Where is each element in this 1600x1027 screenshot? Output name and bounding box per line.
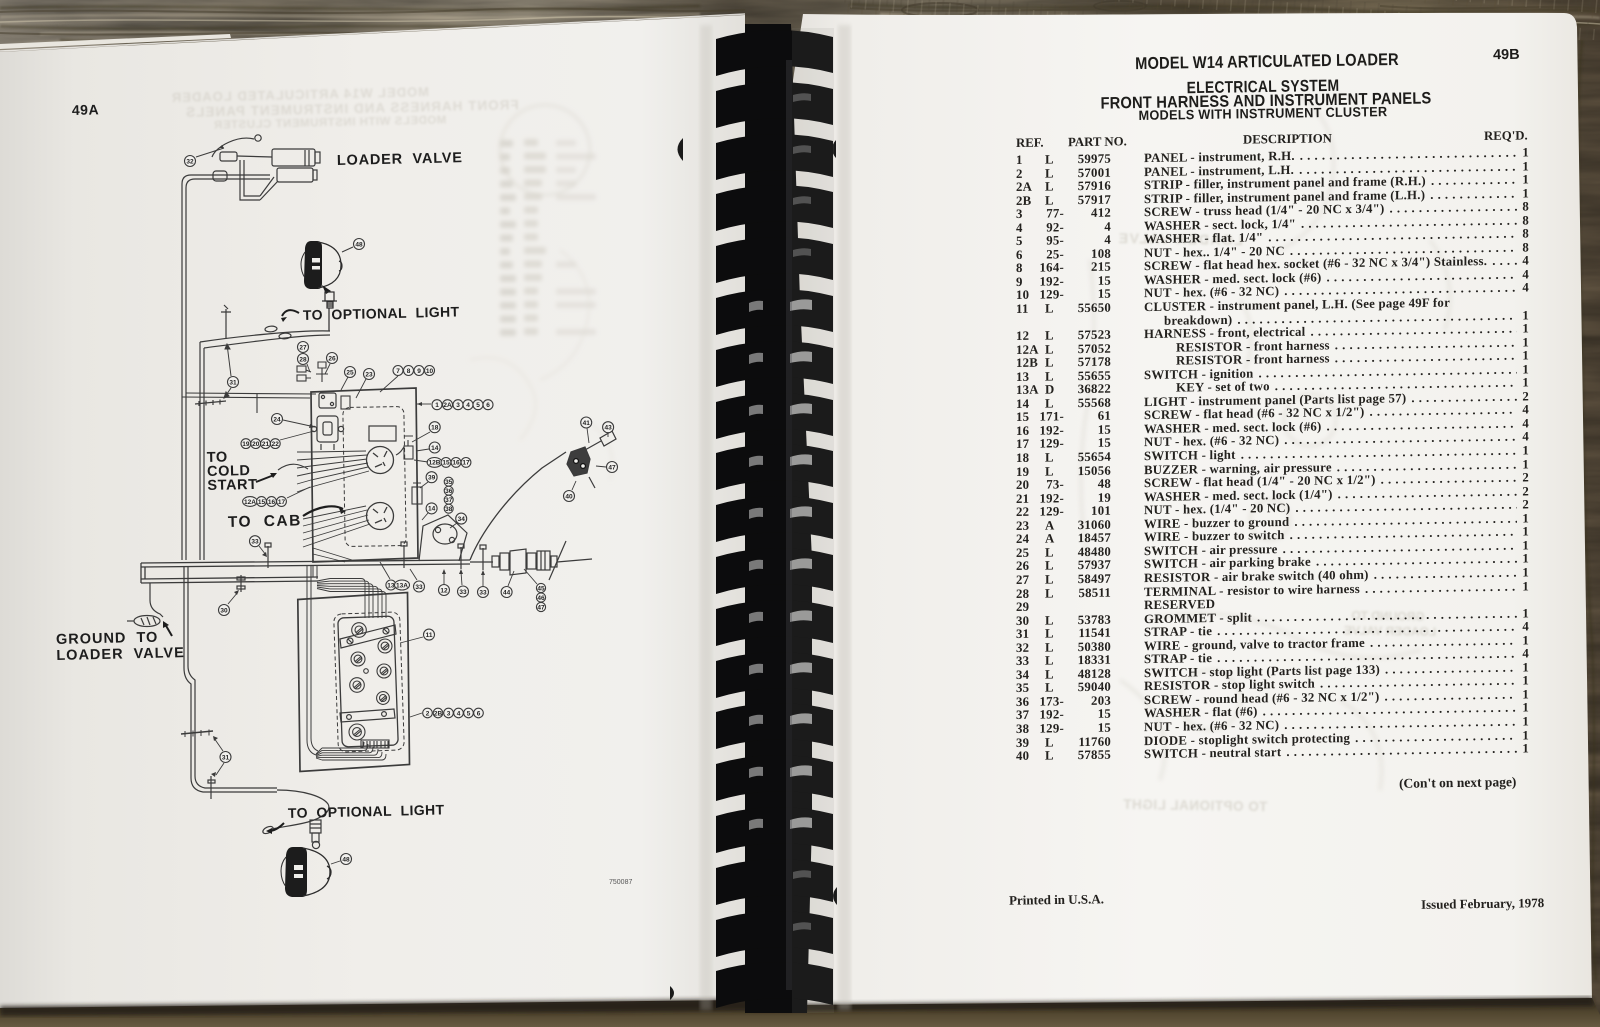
svg-text:5: 5 (476, 402, 480, 409)
svg-text:38: 38 (445, 506, 453, 513)
svg-text:40: 40 (565, 493, 573, 500)
svg-text:9: 9 (417, 368, 421, 375)
svg-text:48: 48 (342, 856, 350, 863)
svg-text:41: 41 (583, 420, 591, 427)
svg-text:25: 25 (346, 369, 354, 376)
svg-text:10: 10 (426, 368, 434, 375)
svg-text:17: 17 (278, 499, 286, 506)
svg-text:6: 6 (477, 710, 481, 717)
svg-text:46: 46 (537, 595, 545, 602)
svg-text:5: 5 (467, 710, 471, 717)
svg-text:31: 31 (229, 379, 237, 386)
svg-text:750087: 750087 (609, 879, 632, 886)
svg-text:19: 19 (242, 441, 250, 448)
svg-text:13: 13 (387, 582, 395, 589)
svg-text:1: 1 (435, 402, 439, 409)
svg-text:14: 14 (431, 445, 439, 452)
svg-text:TO CAB: TO CAB (228, 512, 302, 531)
svg-text:7: 7 (396, 368, 400, 375)
svg-text:32: 32 (186, 158, 194, 165)
svg-text:TO OPTIONAL LIGHT: TO OPTIONAL LIGHT (1122, 797, 1267, 815)
svg-text:31: 31 (222, 754, 230, 761)
svg-text:12: 12 (440, 587, 448, 594)
svg-text:6: 6 (486, 402, 490, 409)
svg-text:21: 21 (262, 441, 270, 448)
svg-text:35: 35 (445, 479, 453, 486)
svg-text:3: 3 (456, 402, 460, 409)
svg-text:3: 3 (447, 710, 451, 717)
svg-text:LOADER VALVE: LOADER VALVE (337, 150, 463, 169)
svg-text:39: 39 (428, 475, 436, 482)
svg-text:13A: 13A (396, 582, 408, 589)
svg-text:44: 44 (503, 589, 511, 596)
svg-text:34: 34 (458, 516, 466, 523)
svg-text:15: 15 (442, 460, 450, 467)
svg-text:45: 45 (537, 585, 545, 592)
svg-text:36: 36 (445, 488, 453, 495)
svg-text:15: 15 (258, 499, 266, 506)
svg-text:47: 47 (608, 464, 616, 471)
svg-text:12A: 12A (244, 499, 256, 506)
svg-text:11: 11 (426, 632, 433, 639)
svg-text:17: 17 (462, 460, 470, 467)
svg-text:14: 14 (428, 506, 436, 513)
svg-text:49A: 49A (72, 101, 100, 118)
svg-text:8: 8 (407, 368, 411, 375)
svg-text:33: 33 (415, 584, 423, 591)
svg-text:16: 16 (268, 499, 276, 506)
svg-text:47: 47 (537, 604, 545, 611)
svg-text:12B: 12B (429, 460, 441, 467)
svg-text:2: 2 (426, 710, 430, 717)
svg-text:2A: 2A (443, 402, 452, 409)
svg-text:24: 24 (273, 416, 281, 423)
svg-text:30: 30 (220, 607, 228, 614)
svg-text:48: 48 (355, 241, 363, 248)
svg-text:33: 33 (479, 589, 487, 596)
svg-text:43: 43 (604, 425, 612, 432)
svg-text:START: START (207, 477, 258, 494)
svg-text:4: 4 (466, 402, 470, 409)
svg-text:27: 27 (299, 344, 307, 351)
svg-text:33: 33 (251, 539, 259, 546)
svg-text:20: 20 (252, 441, 260, 448)
svg-text:33: 33 (459, 589, 467, 596)
svg-text:28: 28 (299, 356, 307, 363)
svg-text:22: 22 (272, 441, 280, 448)
svg-text:4: 4 (457, 710, 461, 717)
svg-text:16: 16 (452, 460, 460, 467)
svg-text:2B: 2B (434, 710, 443, 717)
svg-text:23: 23 (365, 371, 373, 378)
svg-text:LOADER VALVE: LOADER VALVE (56, 645, 185, 664)
svg-text:37: 37 (445, 497, 453, 504)
svg-text:18: 18 (431, 425, 439, 432)
svg-text:26: 26 (328, 355, 336, 362)
